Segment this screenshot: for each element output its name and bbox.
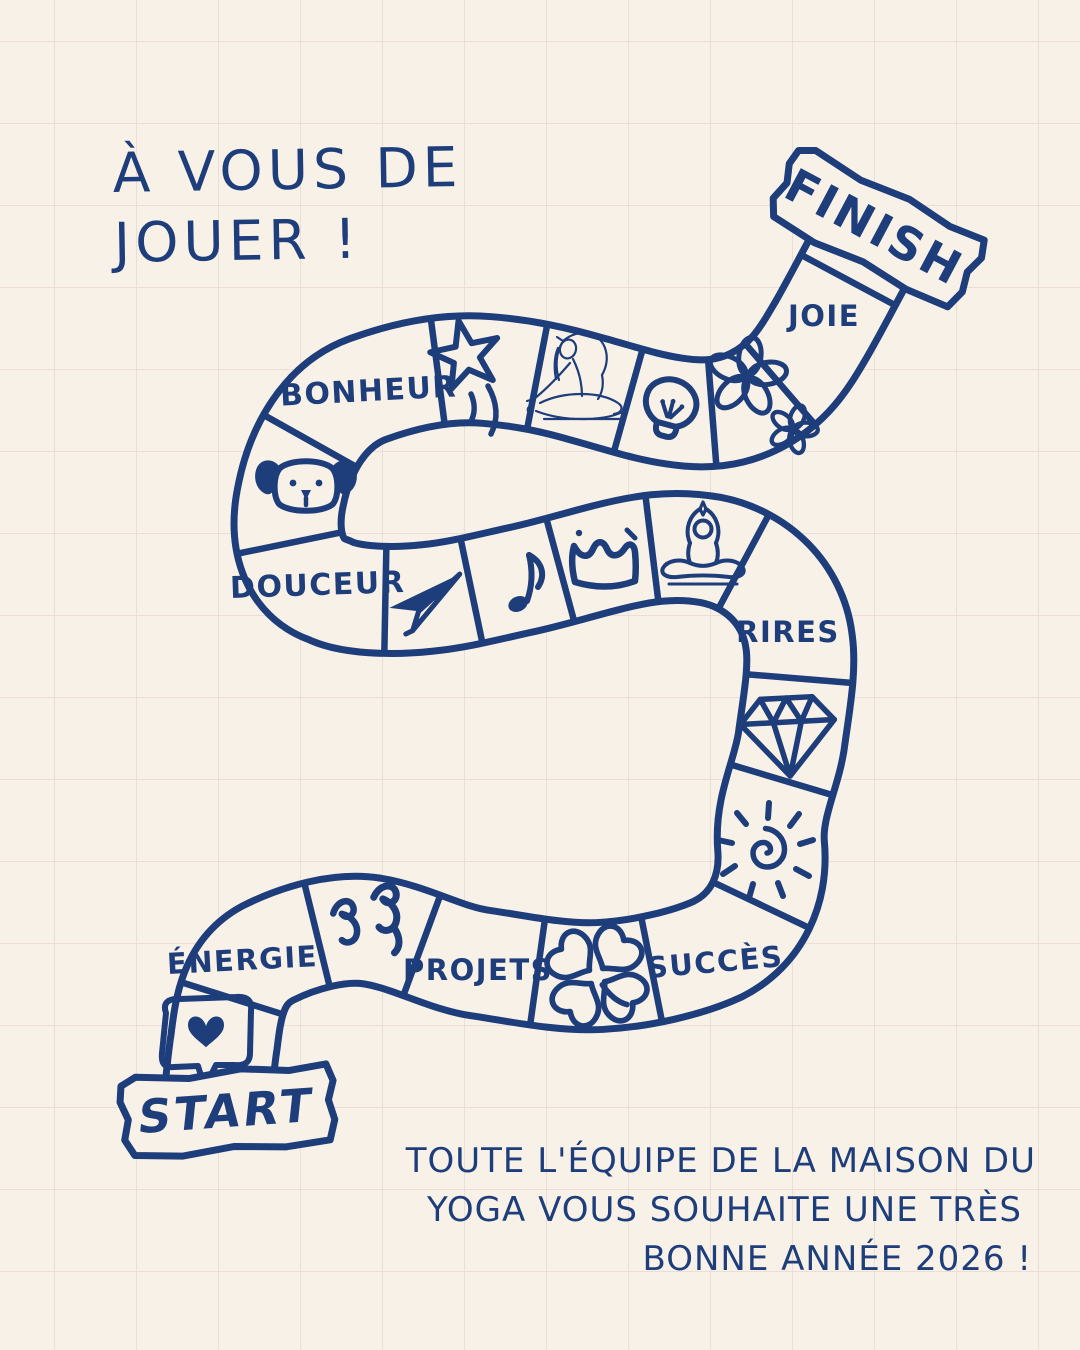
poster: BONHEUR JOIE DOUCEUR RIRES ÉNERGIE PROJE… — [0, 0, 1080, 1350]
greeting-line1: TOUTE L'ÉQUIPE DE LA MAISON DU — [405, 1140, 1036, 1181]
page-title-line1: À VOUS DE — [112, 135, 463, 205]
cell-label-rires: RIRES — [736, 615, 840, 649]
game-board-svg: BONHEUR JOIE DOUCEUR RIRES ÉNERGIE PROJE… — [0, 0, 1080, 1350]
cell-label-joie: JOIE — [786, 299, 860, 333]
start-banner: START — [118, 1062, 337, 1160]
greeting-line2: YOGA VOUS SOUHAITE UNE TRÈS — [426, 1189, 1022, 1230]
page-title-line2: JOUER ! — [110, 207, 361, 275]
cell-label-projets: PROJETS — [403, 953, 553, 987]
greeting-line3: BONNE ANNÉE 2026 ! — [642, 1238, 1032, 1279]
cell-label-douceur: DOUCEUR — [229, 565, 405, 606]
